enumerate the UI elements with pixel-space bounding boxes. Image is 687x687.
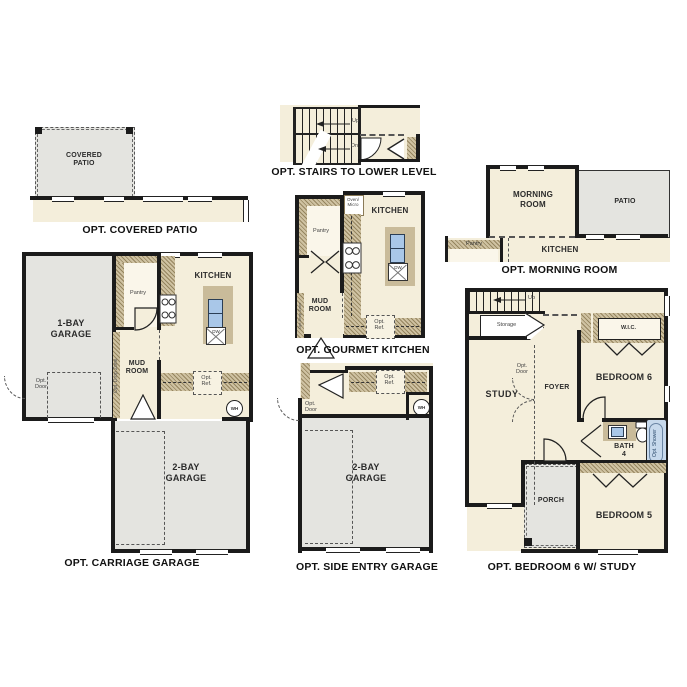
window: [104, 196, 124, 202]
window: [143, 196, 183, 202]
opt-shower-label: Opt. Shower: [652, 424, 660, 462]
window: [586, 234, 604, 240]
opt-ref-label: Opt. Ref.: [366, 319, 393, 332]
room-label-porch: PORCH: [528, 497, 574, 505]
garage-door: [326, 547, 360, 553]
wall: [111, 419, 115, 553]
wall: [112, 327, 134, 330]
window: [616, 234, 640, 240]
room-label-mud: MUD ROOM: [299, 298, 341, 315]
door-opening: [584, 418, 602, 422]
opt-ref-label: Opt. Ref.: [193, 375, 220, 388]
down-arrow-icon: [318, 146, 350, 152]
garage-bay-dashed: [116, 431, 165, 545]
wh-label: WH: [418, 405, 426, 410]
pantry-cabinet: [299, 199, 342, 206]
door-swing-icon: [130, 394, 156, 420]
wall: [577, 330, 581, 422]
stairs-up-label: Up: [528, 295, 546, 301]
sink-icon: [390, 234, 405, 249]
dw-label: DW: [207, 329, 225, 334]
door-leaf-icon: [524, 312, 546, 338]
dishwasher-icon: DW: [206, 327, 226, 345]
double-door-icon: [592, 473, 648, 489]
wall: [500, 238, 503, 262]
opening-dashed: [543, 314, 577, 316]
room-label-kitchen: KITCHEN: [178, 271, 248, 281]
wall: [243, 200, 249, 222]
sink-icon: [208, 313, 223, 328]
wall: [521, 549, 668, 553]
window: [198, 252, 222, 258]
opt-ref-label: Opt. Ref.: [376, 374, 403, 387]
panel-title-covered-patio: OPT. COVERED PATIO: [25, 224, 255, 236]
room-label-foyer: FOYER: [538, 384, 576, 392]
room-label-bedroom5: BEDROOM 5: [584, 510, 664, 521]
drop-zone-label: Opt Drop Zone: [297, 295, 304, 337]
wh-label: WH: [231, 406, 239, 411]
window: [500, 165, 516, 171]
opening-dashed: [159, 330, 160, 360]
window: [52, 196, 74, 202]
room-label-kitchen: KITCHEN: [358, 206, 422, 216]
water-heater-icon: WH: [226, 400, 243, 417]
pantry-floor: [450, 249, 498, 262]
room-porch: [524, 464, 580, 548]
drop-zone-label: Opt. Drop Zone: [113, 337, 120, 415]
wall-hatched: [581, 313, 591, 343]
opt-door-label: Opt. Door: [508, 363, 536, 376]
wall: [465, 336, 527, 340]
door-leaf-icon: [385, 138, 405, 160]
opt-door-swing-dashed: [4, 376, 25, 399]
room-label-covered-patio: COVERED PATIO: [35, 152, 133, 169]
wall: [576, 460, 580, 553]
window: [664, 386, 670, 402]
room-label-2bay: 2-BAY GARAGE: [330, 462, 402, 484]
dw-label: DW: [389, 265, 407, 270]
door-swing-icon: [543, 436, 569, 462]
wall-hatched: [301, 363, 310, 399]
room-label-bath4: BATH 4: [606, 443, 642, 460]
opt-door-label: Opt. Door: [28, 378, 54, 391]
room-label-bedroom6: BEDROOM 6: [586, 372, 662, 383]
door-leaf-icon: [580, 424, 602, 458]
garage-door: [386, 547, 420, 553]
cooktop-icon: [342, 242, 362, 274]
post-icon: [524, 538, 532, 546]
wall: [298, 398, 302, 553]
room-label-patio: PATIO: [595, 198, 655, 206]
wall: [111, 549, 250, 553]
door-swing-icon: [582, 396, 606, 420]
double-door-icon: [604, 342, 656, 357]
opening-dashed: [508, 238, 509, 262]
panel-title-bedroom6-study: OPT. BEDROOM 6 W/ STUDY: [452, 561, 672, 573]
wall: [465, 288, 469, 507]
door-leaf-icon: [310, 248, 340, 276]
closet-shelf-hatched: [580, 463, 666, 473]
post-icon: [126, 127, 133, 134]
garage-bay-dashed: [305, 430, 353, 544]
wall: [222, 417, 253, 421]
wall: [580, 460, 668, 463]
sink-icon: [208, 299, 223, 314]
window: [598, 549, 638, 555]
house-floor-strip: [33, 199, 247, 222]
up-arrow-icon: [493, 297, 525, 303]
floorplan-sheet: COVERED PATIO OPT. COVERED PATIO Up Dn: [0, 0, 687, 687]
wall: [295, 255, 309, 258]
wall: [521, 460, 525, 507]
wall: [249, 252, 253, 422]
wall: [358, 159, 420, 162]
opening-dashed: [360, 134, 404, 136]
cooktop-icon: [159, 294, 177, 324]
wall-hatched: [407, 137, 416, 161]
sink-icon: [390, 248, 405, 263]
window: [383, 191, 405, 197]
room-label-kitchen: KITCHEN: [520, 245, 600, 255]
room-label-morning: MORNING ROOM: [489, 190, 577, 209]
panel-title-gourmet-kitchen: OPT. GOURMET KITCHEN: [278, 344, 448, 356]
wall: [358, 105, 420, 108]
room-label-2bay: 2-BAY GARAGE: [150, 462, 222, 484]
panel-title-morning-room: OPT. MORNING ROOM: [452, 264, 667, 276]
panel-title-stairs-lower: OPT. STAIRS TO LOWER LEVEL: [258, 166, 450, 178]
window: [664, 296, 670, 316]
door-swing-icon: [318, 373, 344, 399]
pantry-label: Pantry: [118, 290, 158, 296]
storage-label: Storage: [484, 322, 529, 328]
room-label-wic: W.I.C.: [598, 325, 659, 331]
opt-entry-dashed: [47, 372, 101, 418]
room-label-1bay: 1-BAY GARAGE: [35, 318, 107, 340]
up-arrow-icon: [316, 121, 350, 127]
panel-title-side-entry: OPT. SIDE ENTRY GARAGE: [276, 561, 458, 573]
garage-door: [196, 549, 228, 555]
pantry-cabinet: [116, 256, 160, 263]
door-swing-icon: [134, 307, 158, 331]
window: [528, 165, 544, 171]
opt-door-label: Opt. Door: [302, 401, 331, 414]
pantry-label: Pantry: [452, 241, 496, 247]
wall: [406, 392, 433, 395]
sink-icon: [611, 427, 624, 437]
room-label-mud: MUD ROOM: [116, 360, 158, 377]
window: [487, 503, 512, 509]
post-icon: [35, 127, 42, 134]
pantry-label: Pantry: [301, 228, 341, 234]
panel-title-carriage-garage: OPT. CARRIAGE GARAGE: [18, 557, 246, 569]
stairs-up-label: Up: [352, 118, 370, 124]
opening-dashed: [342, 293, 343, 318]
garage-door: [140, 549, 172, 555]
wall: [246, 419, 250, 553]
wall: [416, 134, 420, 162]
door-swing-icon: [360, 137, 382, 161]
window: [188, 196, 212, 202]
wall: [298, 414, 433, 418]
opt-door-swing-dashed: [277, 398, 299, 421]
dishwasher-icon: DW: [388, 263, 408, 281]
